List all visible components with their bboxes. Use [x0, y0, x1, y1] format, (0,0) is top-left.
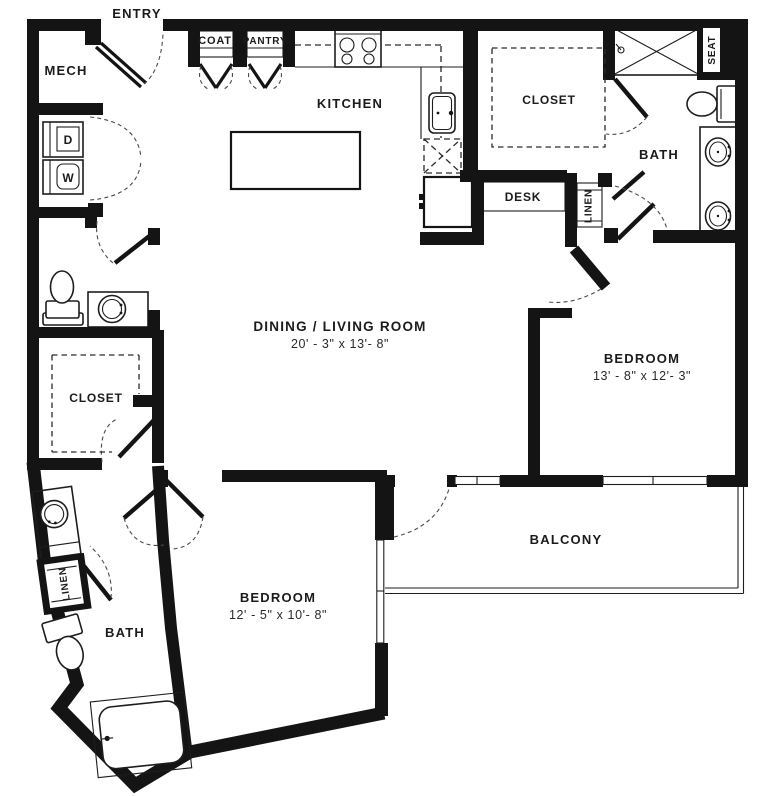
stove-icon	[335, 28, 381, 67]
walls	[27, 19, 748, 785]
desk-label: DESK	[505, 190, 542, 204]
powder-sink-icon	[88, 292, 148, 327]
washer-icon: W	[43, 160, 83, 194]
bedroom-lower-label: BEDROOM	[240, 590, 316, 605]
dining-living-dims: 20' - 3" x 13'- 8"	[291, 337, 389, 351]
bedroom-right-dims: 13' - 8" x 12'- 3"	[593, 369, 691, 383]
bedroom-lower-dims: 12' - 5" x 10'- 8"	[229, 608, 327, 622]
lower-linen-closet: LINEN	[36, 553, 91, 615]
kitchen-island	[231, 132, 360, 189]
kitchen-sink-icon	[429, 93, 455, 133]
mech-label: MECH	[44, 63, 87, 78]
washer-label: W	[62, 171, 74, 185]
lower-toilet-icon	[42, 614, 92, 675]
upper-toilet-icon	[687, 86, 737, 122]
upper-bath-label: BATH	[639, 147, 679, 162]
shower-seat-label: SEAT	[707, 35, 718, 64]
bedroom-right-label: BEDROOM	[604, 351, 680, 366]
upper-closet-label: CLOSET	[522, 93, 575, 107]
lower-bath-label: BATH	[105, 625, 145, 640]
floor-plan-svg: D W	[0, 0, 760, 796]
balcony-label: BALCONY	[530, 532, 603, 547]
coat-label: COAT	[198, 35, 232, 47]
dryer-label: D	[64, 133, 73, 147]
pantry-label: PANTRY	[243, 36, 288, 47]
powder-toilet-icon	[43, 271, 83, 325]
entry-label: ENTRY	[112, 6, 162, 21]
shower-icon	[613, 28, 700, 75]
refrigerator-icon	[419, 177, 472, 227]
dining-living-label: DINING / LIVING ROOM	[253, 319, 426, 334]
left-closet-label: CLOSET	[69, 391, 122, 405]
corner-cabinet-icon	[424, 139, 461, 173]
windows	[377, 477, 707, 644]
upper-linen-label: LINEN	[584, 189, 595, 223]
shower-seat: SEAT	[703, 28, 720, 72]
room-labels: ENTRY MECH COAT PANTRY KITCHEN CLOSET BA…	[44, 6, 691, 640]
kitchen-label: KITCHEN	[317, 96, 383, 111]
floor-plan-page: D W	[0, 0, 760, 796]
double-vanity-icon	[700, 127, 736, 240]
dryer-icon: D	[43, 122, 83, 157]
